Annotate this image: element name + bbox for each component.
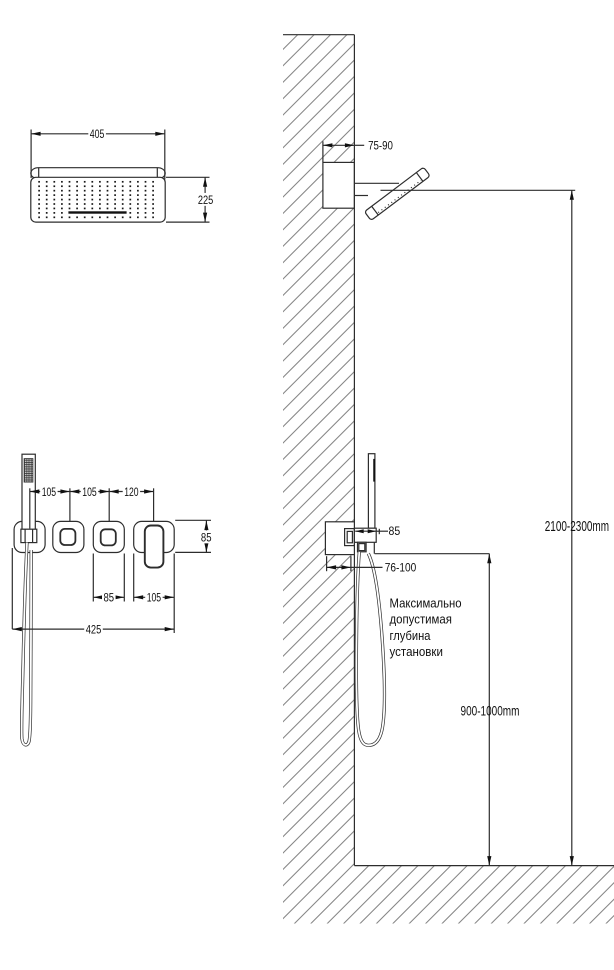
svg-text:105: 105 xyxy=(82,485,97,499)
svg-text:2100-2300mm: 2100-2300mm xyxy=(545,518,609,535)
svg-text:105: 105 xyxy=(147,591,162,605)
svg-text:900-1000mm: 900-1000mm xyxy=(461,703,520,718)
svg-text:75-90: 75-90 xyxy=(368,139,393,153)
svg-text:405: 405 xyxy=(90,127,105,141)
svg-text:85: 85 xyxy=(389,524,401,538)
svg-text:76-100: 76-100 xyxy=(385,561,417,575)
svg-text:установки: установки xyxy=(390,644,443,659)
svg-text:допустимая: допустимая xyxy=(390,612,452,627)
svg-text:120: 120 xyxy=(124,485,139,499)
svg-text:425: 425 xyxy=(86,623,102,637)
svg-text:85: 85 xyxy=(201,530,212,544)
svg-text:Максимально: Максимально xyxy=(390,595,462,610)
svg-text:85: 85 xyxy=(104,591,115,605)
svg-text:глубина: глубина xyxy=(390,628,431,643)
svg-text:105: 105 xyxy=(42,485,57,499)
svg-text:225: 225 xyxy=(198,193,214,207)
